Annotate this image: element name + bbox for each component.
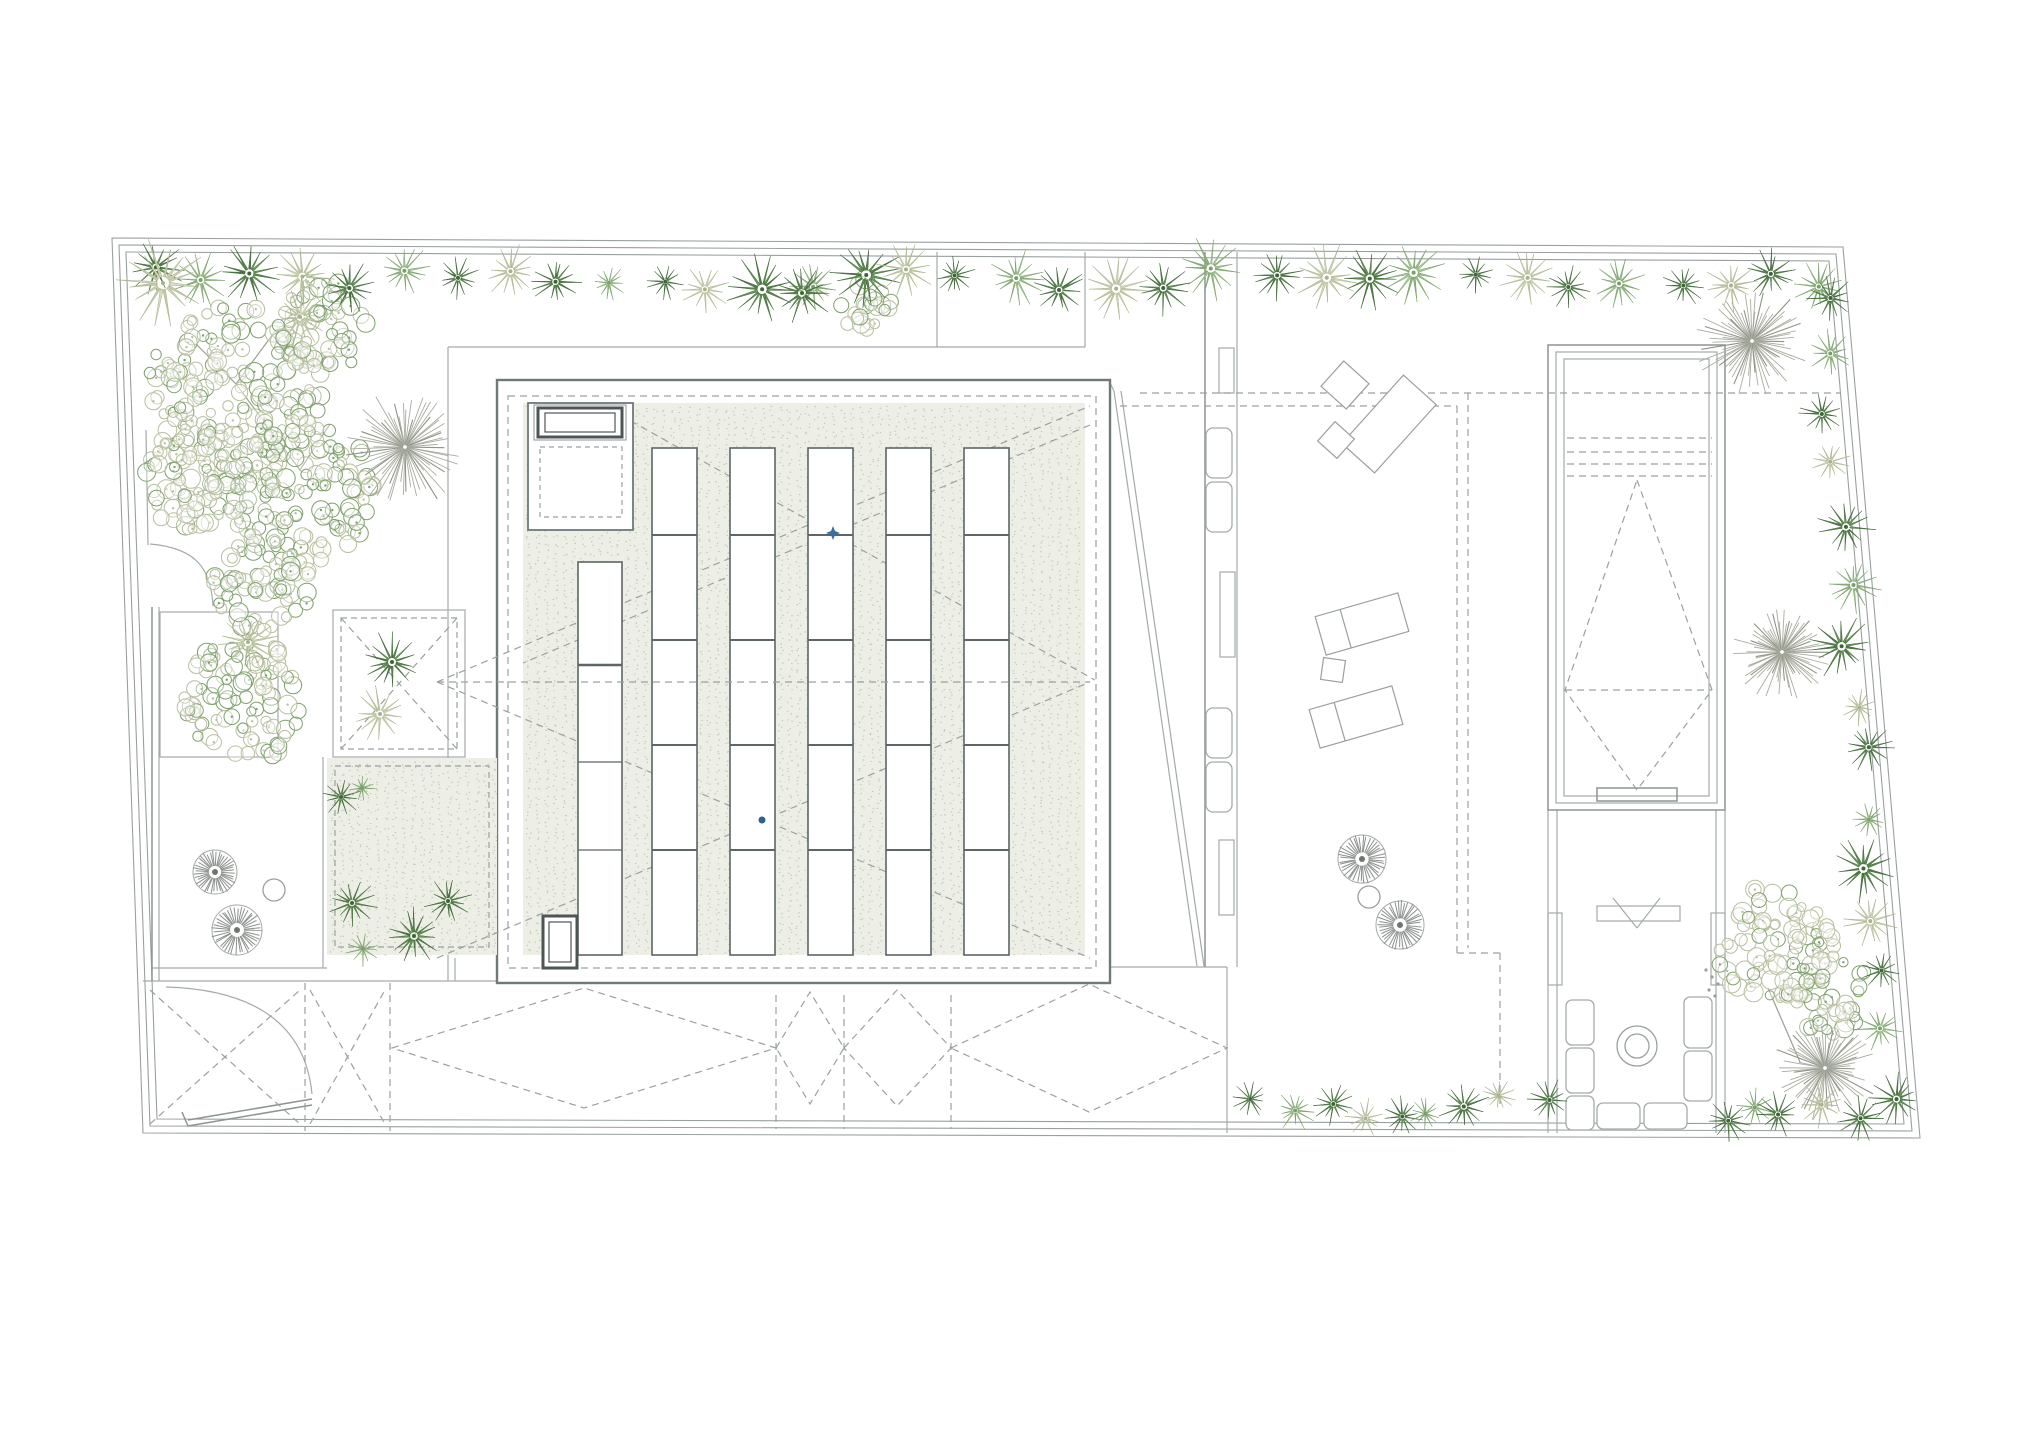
site-plan-canvas [0, 0, 2038, 1440]
roof-marker-dot [759, 817, 766, 824]
loungers-and-tables [1309, 361, 1436, 748]
lounger [1321, 658, 1346, 683]
lounger [1318, 422, 1355, 459]
architectural-roof-plan [0, 0, 2038, 1440]
lounger [1315, 593, 1409, 655]
lounger [1309, 686, 1403, 748]
lounger [1321, 361, 1369, 409]
